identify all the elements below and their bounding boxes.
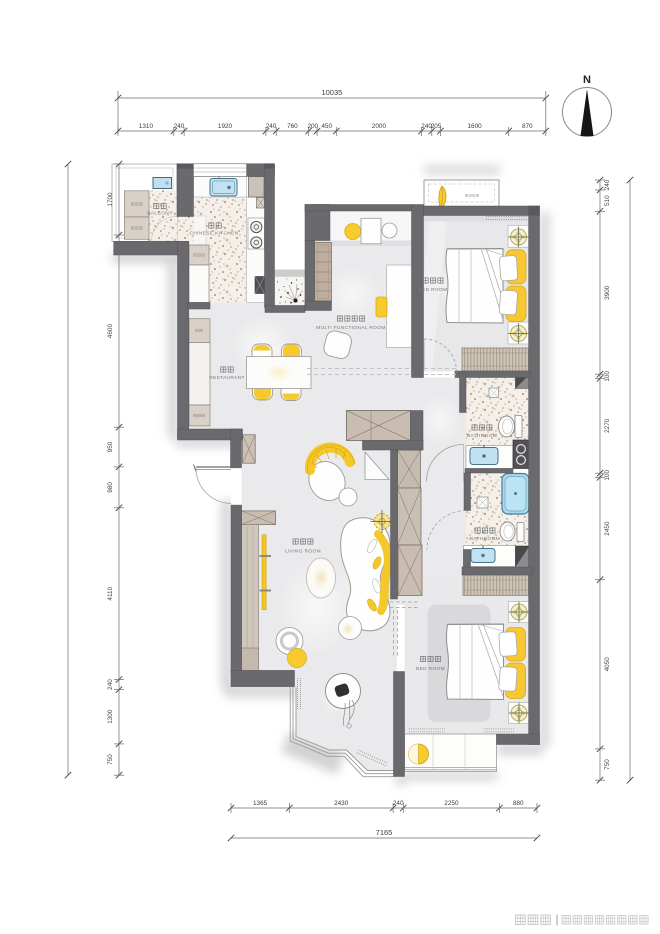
svg-text:950: 950 [107,441,114,452]
svg-text:1600: 1600 [467,123,482,130]
svg-text:4600: 4600 [107,324,114,339]
svg-text:1700: 1700 [107,192,114,207]
svg-text:10035: 10035 [321,88,342,97]
svg-text:870: 870 [522,123,533,130]
svg-text:240: 240 [174,123,185,130]
svg-text:100: 100 [604,371,611,382]
svg-text:1920: 1920 [218,123,233,130]
svg-text:750: 750 [107,754,114,765]
svg-text:BED ROOM: BED ROOM [416,666,445,672]
svg-text:100: 100 [604,470,611,481]
svg-text:N: N [583,74,591,86]
svg-text:450: 450 [321,123,332,130]
svg-text:4110: 4110 [107,586,114,600]
svg-text:240: 240 [604,179,611,190]
svg-text:4050: 4050 [604,657,611,672]
svg-text:7165: 7165 [376,828,393,837]
svg-text:510: 510 [604,195,611,206]
svg-text:240: 240 [266,123,277,130]
svg-text:2250: 2250 [444,800,459,807]
svg-text:RESTAURANT: RESTAURANT [209,375,245,381]
svg-text:240: 240 [393,800,404,807]
svg-text:MULTI FUNCTIONAL ROOM: MULTI FUNCTIONAL ROOM [316,325,385,331]
svg-text:980: 980 [107,482,114,493]
svg-text:205: 205 [431,123,442,130]
svg-text:BATHROOM: BATHROOM [470,536,500,542]
svg-text:240: 240 [107,679,114,690]
svg-text:3900: 3900 [604,285,611,300]
svg-text:880: 880 [513,800,524,807]
svg-text:200: 200 [307,123,318,130]
svg-text:LIVING ROOM: LIVING ROOM [285,549,321,555]
svg-text:1300: 1300 [107,709,114,724]
svg-text:750: 750 [604,759,611,770]
svg-text:CHINESE KITCHEN: CHINESE KITCHEN [190,231,239,237]
svg-text:1365: 1365 [253,800,268,807]
svg-text:1310: 1310 [139,123,154,130]
svg-text:2000: 2000 [372,123,387,130]
svg-text:2430: 2430 [334,800,349,807]
svg-text:BALCONY: BALCONY [147,211,173,217]
svg-text:BATHROOM: BATHROOM [467,433,497,439]
svg-text:2450: 2450 [604,521,611,536]
svg-text:14630: 14630 [0,395,2,416]
svg-text:2270: 2270 [604,418,611,433]
svg-text:BED ROOM: BED ROOM [419,287,448,293]
svg-text:760: 760 [287,123,298,130]
